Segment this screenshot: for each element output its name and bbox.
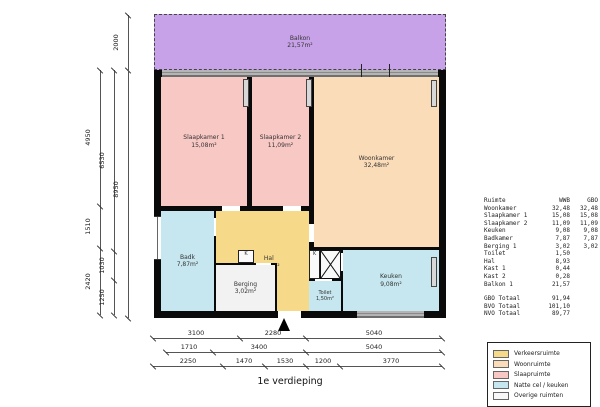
- room-balkon-label: Balkon 21,57m²: [287, 35, 312, 50]
- room-woonkamer-name: Woonkamer: [359, 155, 395, 163]
- legend-swatch-icon: [493, 371, 509, 379]
- room-balkon-area: 21,57m²: [287, 42, 312, 50]
- dim-b2-b: 3400: [251, 344, 268, 351]
- table-row: Badkamer7,877,87: [484, 235, 598, 243]
- room-badkamer-area: 7,87m²: [177, 261, 199, 269]
- dim-left1-c: 2420: [85, 273, 92, 290]
- front-door: [278, 311, 301, 318]
- room-balkon-name: Balkon: [287, 35, 312, 43]
- dim-b2-a: 1710: [181, 344, 198, 351]
- legend-label: Overige ruimten: [514, 392, 563, 399]
- door-berging: [256, 263, 271, 265]
- dim-left2-b: 1030: [99, 257, 106, 274]
- kast-2: K: [309, 250, 320, 279]
- room-badkamer-name: Badk: [177, 254, 199, 262]
- room-slaapkamer2-area: 11,09m²: [260, 142, 301, 150]
- table-row: Hal8,93: [484, 258, 598, 266]
- table-row: Woonkamer32,4832,48: [484, 205, 598, 213]
- dim-line-left-3: [128, 70, 129, 318]
- top-facade-window-band: [162, 70, 438, 77]
- room-slaapkamer1-name: Slaapkamer 1: [183, 134, 224, 142]
- balcony-door-leaf-icon: [243, 79, 249, 107]
- window-leaf-icon: [431, 80, 437, 107]
- room-badkamer: Badk 7,87m²: [161, 211, 214, 311]
- plan-title: 1e verdieping: [230, 376, 350, 387]
- legend-label: Verkeersruimte: [514, 350, 560, 357]
- legend-item: Overige ruimten: [493, 392, 585, 400]
- room-keuken-name: Keuken: [380, 273, 402, 281]
- dim-b3-a: 2250: [180, 358, 197, 365]
- room-slaapkamer-2: Slaapkamer 2 11,09m²: [252, 77, 309, 206]
- room-woonkamer-area: 32,48m²: [359, 162, 395, 170]
- door-toilet: [315, 279, 332, 281]
- dim-left1-b: 1510: [85, 218, 92, 235]
- legend-item: Natte cel / keuken: [493, 381, 585, 389]
- room-woonkamer: Woonkamer 32,48m²: [314, 77, 439, 247]
- table-row: Berging 13,023,02: [484, 243, 598, 251]
- dim-left1-a: 4950: [85, 129, 92, 146]
- legend-item: Woonruimte: [493, 360, 585, 368]
- room-keuken-area: 9,08m²: [380, 281, 402, 289]
- berging-right-wall: [275, 263, 277, 311]
- badkamer-window: [154, 216, 161, 260]
- dim-left3-a: 8950: [113, 181, 120, 198]
- kast-1-label: K: [244, 251, 247, 257]
- dim-b2-c: 5040: [366, 344, 383, 351]
- table-row: Kast 10,44: [484, 265, 598, 273]
- room-toilet-area: 1,50m²: [316, 296, 334, 302]
- table-header-row: RuimteWWBGBO: [484, 197, 598, 205]
- room-hal-name: Hal: [258, 255, 280, 263]
- table-row: Balkon 121,57: [484, 281, 598, 289]
- dim-b3-d: 1200: [315, 358, 332, 365]
- legend-label: Slaapruimte: [514, 371, 550, 378]
- legend-swatch-icon: [493, 350, 509, 358]
- door-badkamer: [214, 218, 216, 236]
- dim-b3-e: 3770: [383, 358, 400, 365]
- room-keuken: Keuken 9,08m²: [343, 250, 439, 311]
- keuken-window: [357, 311, 424, 318]
- shaft-box: [320, 250, 341, 279]
- door-woonkamer: [309, 224, 314, 242]
- room-balkon: Balkon 21,57m²: [154, 14, 446, 70]
- legend-swatch-icon: [493, 360, 509, 368]
- table-total-row: BVO Totaal101,10: [484, 303, 598, 311]
- room-berging: Berging 3,02m²: [216, 265, 275, 311]
- kast-1: K: [238, 250, 254, 263]
- table-total-row: NVO Totaal89,77: [484, 310, 598, 318]
- room-toilet: Toilet 1,50m²: [309, 281, 341, 311]
- dim-left2-a: 6530: [99, 152, 106, 169]
- kast-2-label: K: [313, 251, 316, 257]
- legend-swatch-icon: [493, 381, 509, 389]
- door-keuken: [341, 253, 343, 271]
- table-row: Slaapkamer 115,0815,08: [484, 212, 598, 220]
- dim-b1-a: 3100: [188, 330, 205, 337]
- legend-item: Slaapruimte: [493, 371, 585, 379]
- dim-line-balcony: [128, 15, 129, 70]
- table-row: Keuken9,089,08: [484, 227, 598, 235]
- legend-label: Woonruimte: [514, 361, 551, 368]
- room-berging-area: 3,02m²: [234, 288, 257, 296]
- legend-swatch-icon: [493, 392, 509, 400]
- table-total-row: GBO Totaal91,94: [484, 295, 598, 303]
- shaft-cross-icon: [321, 251, 340, 278]
- dim-line-bottom-1: [153, 338, 442, 339]
- dim-balcony-height: 2000: [113, 34, 120, 51]
- legend: VerkeersruimteWoonruimteSlaapruimteNatte…: [487, 342, 591, 407]
- room-slaapkamer-1: Slaapkamer 1 15,08m²: [161, 77, 247, 206]
- dim-b1-b: 2280: [265, 330, 282, 337]
- table-row: Slaapkamer 211,0911,09: [484, 220, 598, 228]
- table-row: Kast 20,28: [484, 273, 598, 281]
- legend-label: Natte cel / keuken: [514, 382, 568, 389]
- dim-b1-c: 5040: [366, 330, 383, 337]
- door-slaapkamer2: [283, 206, 301, 211]
- room-slaapkamer2-name: Slaapkamer 2: [260, 134, 301, 142]
- dim-left2-c: 1250: [99, 289, 106, 306]
- area-table: RuimteWWBGBOWoonkamer32,4832,48Slaapkame…: [484, 197, 598, 318]
- dim-line-left-1: [100, 70, 101, 315]
- dim-b3-b: 1470: [236, 358, 253, 365]
- window-leaf-icon: [431, 257, 437, 287]
- room-berging-name: Berging: [234, 281, 257, 289]
- floor-plan-canvas: Balkon 21,57m² Slaapkamer 1 15,08m² Slaa…: [0, 0, 600, 407]
- door-slaapkamer1: [222, 206, 240, 211]
- dim-b3-c: 1530: [277, 358, 294, 365]
- balcony-door-leaf-icon: [306, 79, 312, 107]
- dim-line-bottom-3: [153, 366, 442, 367]
- table-spacer: [484, 288, 598, 295]
- room-slaapkamer1-area: 15,08m²: [183, 142, 224, 150]
- legend-item: Verkeersruimte: [493, 350, 585, 358]
- table-row: Toilet1,50: [484, 250, 598, 258]
